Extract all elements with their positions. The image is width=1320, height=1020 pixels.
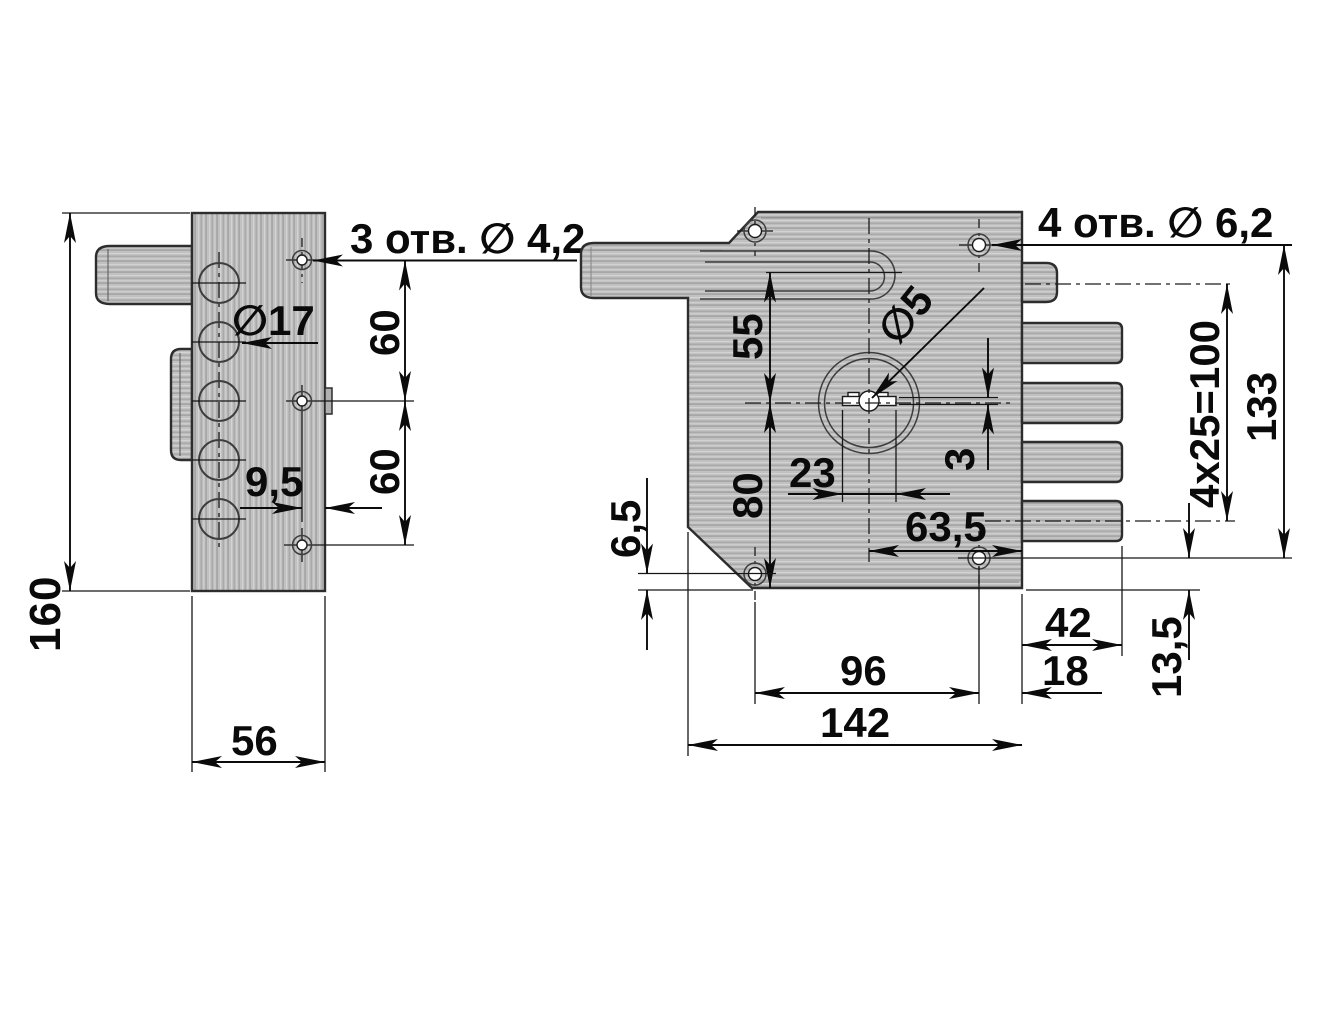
holes-note-label: 4 отв. ∅ 6,2 <box>1038 199 1273 246</box>
dia-17-label: ∅17 <box>232 297 315 344</box>
dim-3-label: 3 <box>936 448 983 471</box>
deadbolt <box>1022 323 1122 363</box>
dim-55-label: 55 <box>724 313 771 360</box>
dim-13-5-label: 13,5 <box>1143 616 1190 698</box>
technical-drawing-canvas: 160 3 отв. ∅ 4,2 60 60 ∅17 <box>0 0 1320 1020</box>
side-bolt-stem <box>96 246 192 304</box>
dim-96-label: 96 <box>840 647 887 694</box>
dim-18-label: 18 <box>1042 647 1089 694</box>
deadbolt <box>1022 442 1122 482</box>
dim-80-label: 80 <box>724 472 771 519</box>
dimension-dia17: ∅17 <box>232 297 318 349</box>
dim-4x25-label: 4x25=100 <box>1181 320 1228 508</box>
dim-56-label: 56 <box>231 717 278 764</box>
holes-note-label: 3 отв. ∅ 4,2 <box>350 215 585 262</box>
dim-6-5-label: 6,5 <box>602 500 649 558</box>
dim-60-bottom-label: 60 <box>361 448 408 495</box>
dim-133-label: 133 <box>1238 372 1285 442</box>
dim-63-5-label: 63,5 <box>905 503 987 550</box>
side-cylinder-boss <box>171 349 192 460</box>
dim-42-label: 42 <box>1045 599 1092 646</box>
lock-dimensional-drawing: 160 3 отв. ∅ 4,2 60 60 ∅17 <box>0 0 1320 1020</box>
dim-160-label: 160 <box>21 576 70 652</box>
dim-60-top-label: 60 <box>361 309 408 356</box>
dim-23-label: 23 <box>789 449 836 496</box>
dim-142-label: 142 <box>820 699 890 746</box>
note-3-holes: 3 отв. ∅ 4,2 <box>313 215 585 267</box>
dim-9-5-label: 9,5 <box>245 458 303 505</box>
deadbolt <box>1022 383 1122 423</box>
